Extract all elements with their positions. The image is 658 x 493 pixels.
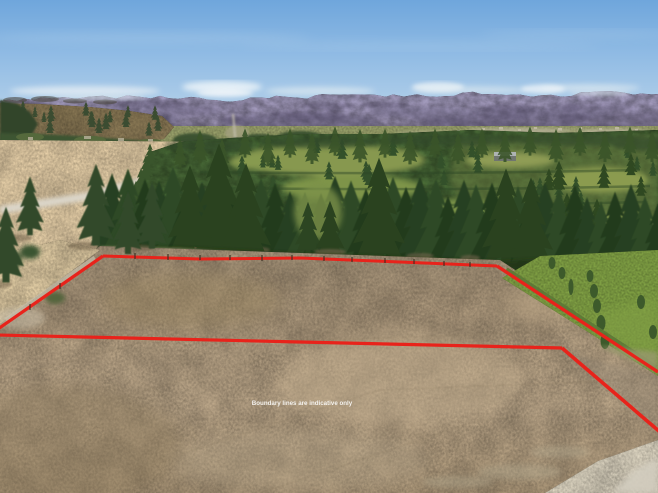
- svg-text:Boundary lines are indicative: Boundary lines are indicative only: [252, 400, 353, 407]
